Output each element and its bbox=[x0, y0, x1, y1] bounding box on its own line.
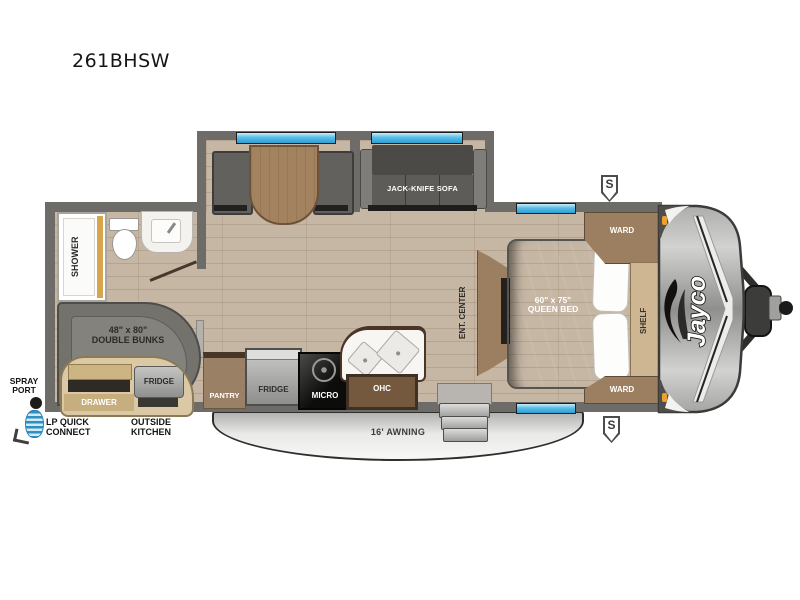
outside-kitchen-line2: KITCHEN bbox=[124, 428, 178, 438]
dinette-table bbox=[249, 145, 319, 225]
window bbox=[236, 132, 336, 144]
spray-port-line2: PORT bbox=[4, 386, 44, 395]
entry-landing bbox=[437, 383, 492, 405]
sofa-back bbox=[372, 145, 473, 175]
lp-line2: CONNECT bbox=[46, 428, 102, 438]
overhead-cabinet: OHC bbox=[346, 374, 418, 410]
drawer-label: DRAWER bbox=[64, 394, 134, 411]
marker-light-icon bbox=[662, 393, 667, 402]
pantry: PANTRY bbox=[203, 352, 246, 409]
lp-quick-connect-label: LP QUICK CONNECT bbox=[46, 418, 102, 438]
window bbox=[371, 132, 463, 144]
bathroom-vanity bbox=[141, 211, 193, 253]
bunk-label: 48" x 80" DOUBLE BUNKS bbox=[59, 326, 197, 346]
sofa-base bbox=[368, 205, 477, 211]
bed-label: 60" x 75" QUEEN BED bbox=[509, 296, 597, 315]
speaker-symbol: S bbox=[603, 416, 620, 443]
sink-basin bbox=[375, 329, 420, 374]
floorplan-canvas: 261BHSW 16' AWNING SHOWER 48" x 80" DOUB… bbox=[0, 0, 800, 600]
marker-light-icon bbox=[662, 216, 667, 225]
outside-kitchen-label: OUTSIDE KITCHEN bbox=[124, 418, 178, 438]
outside-kitchen-slot bbox=[68, 380, 130, 392]
sink-basin bbox=[347, 341, 384, 378]
spray-port-label: SPRAY PORT bbox=[4, 377, 44, 396]
shower-door bbox=[97, 216, 103, 298]
spray-port-icon bbox=[30, 397, 42, 409]
fridge-lid bbox=[247, 350, 300, 360]
ohc-label: OHC bbox=[349, 377, 415, 401]
outside-kitchen: DRAWER FRIDGE bbox=[60, 356, 194, 417]
bed-name-label: QUEEN BED bbox=[509, 305, 597, 314]
shower: SHOWER bbox=[57, 212, 107, 302]
ent-center-label: ENT. CENTER bbox=[459, 272, 468, 354]
shower-label: SHOWER bbox=[71, 224, 81, 290]
outside-fridge-label: FRIDGE bbox=[135, 367, 183, 397]
hitch-ball-icon bbox=[779, 301, 793, 315]
hose-nozzle-icon bbox=[13, 428, 31, 444]
drain-icon bbox=[362, 357, 368, 363]
brand-logo-text: Jayco bbox=[683, 276, 711, 347]
outside-kitchen-drawer-front bbox=[68, 364, 132, 380]
propane-cover bbox=[745, 286, 771, 336]
bath-wall bbox=[197, 211, 206, 269]
window bbox=[516, 403, 576, 414]
wall-rear bbox=[45, 202, 55, 412]
awning: 16' AWNING bbox=[212, 411, 584, 461]
outside-fridge-vent bbox=[138, 398, 178, 407]
jack-knife-sofa: JACK-KNIFE SOFA bbox=[360, 145, 485, 213]
bench-base bbox=[315, 205, 348, 211]
sofa-label: JACK-KNIFE SOFA bbox=[372, 185, 473, 193]
speaker-symbol-letter: S bbox=[601, 177, 618, 191]
awning-label: 16' AWNING bbox=[214, 428, 582, 438]
drain-icon bbox=[395, 350, 401, 356]
outside-kitchen-drawer: DRAWER bbox=[64, 394, 134, 411]
window bbox=[516, 203, 576, 214]
fridge-label: FRIDGE bbox=[247, 386, 300, 395]
bench-base bbox=[214, 205, 247, 211]
pillow bbox=[592, 312, 630, 380]
speaker-symbol: S bbox=[601, 175, 618, 202]
speaker-symbol-letter: S bbox=[603, 418, 620, 432]
bunk-name-label: DOUBLE BUNKS bbox=[59, 336, 197, 346]
burner-icon bbox=[312, 358, 336, 382]
entry-step bbox=[443, 428, 488, 442]
slideout-wall-left bbox=[197, 131, 206, 211]
sofa-arm bbox=[473, 149, 487, 209]
pantry-label: PANTRY bbox=[204, 392, 245, 400]
outside-fridge: FRIDGE bbox=[134, 366, 184, 398]
countertop bbox=[342, 330, 424, 380]
fridge: FRIDGE bbox=[245, 348, 302, 406]
front-cap: Jayco bbox=[645, 190, 797, 430]
micro-label: MICRO bbox=[300, 392, 350, 401]
model-number: 261BHSW bbox=[72, 50, 170, 72]
